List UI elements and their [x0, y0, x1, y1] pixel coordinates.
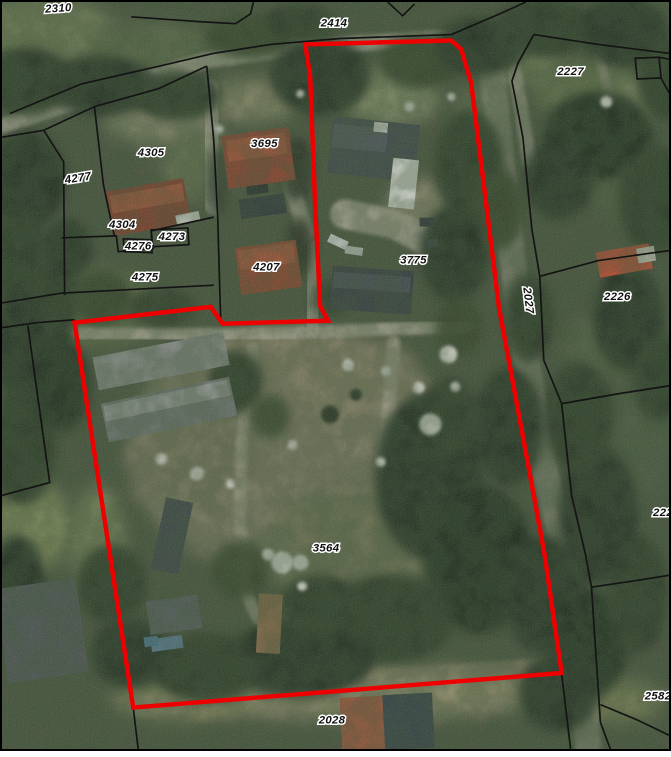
parcel-label-4305: 4305: [137, 147, 165, 159]
parcel-label-222: 222: [652, 507, 669, 519]
parcel-label-3564: 3564: [313, 543, 340, 555]
map-screenshot: 2310241422274305369542774304427342764275…: [0, 0, 671, 751]
parcel-label-4207: 4207: [252, 261, 280, 273]
photo-grain: [2, 2, 669, 749]
parcel-label-4275: 4275: [131, 271, 159, 283]
parcel-label-3775: 3775: [400, 255, 427, 267]
parcel-label-4304: 4304: [108, 219, 136, 231]
parcel-label-4273: 4273: [158, 231, 186, 243]
parcel-label-2414: 2414: [320, 18, 348, 30]
parcel-label-2226: 2226: [603, 291, 631, 303]
parcel-label-4276: 4276: [124, 241, 152, 253]
parcel-label-2227: 2227: [556, 66, 584, 78]
parcel-label-3695: 3695: [251, 138, 278, 150]
parcel-label-2028: 2028: [318, 714, 346, 726]
parcel-label-2310: 2310: [44, 2, 73, 16]
aerial-cadastral-map: 2310241422274305369542774304427342764275…: [2, 2, 669, 749]
parcel-label-2582: 2582: [644, 691, 669, 703]
